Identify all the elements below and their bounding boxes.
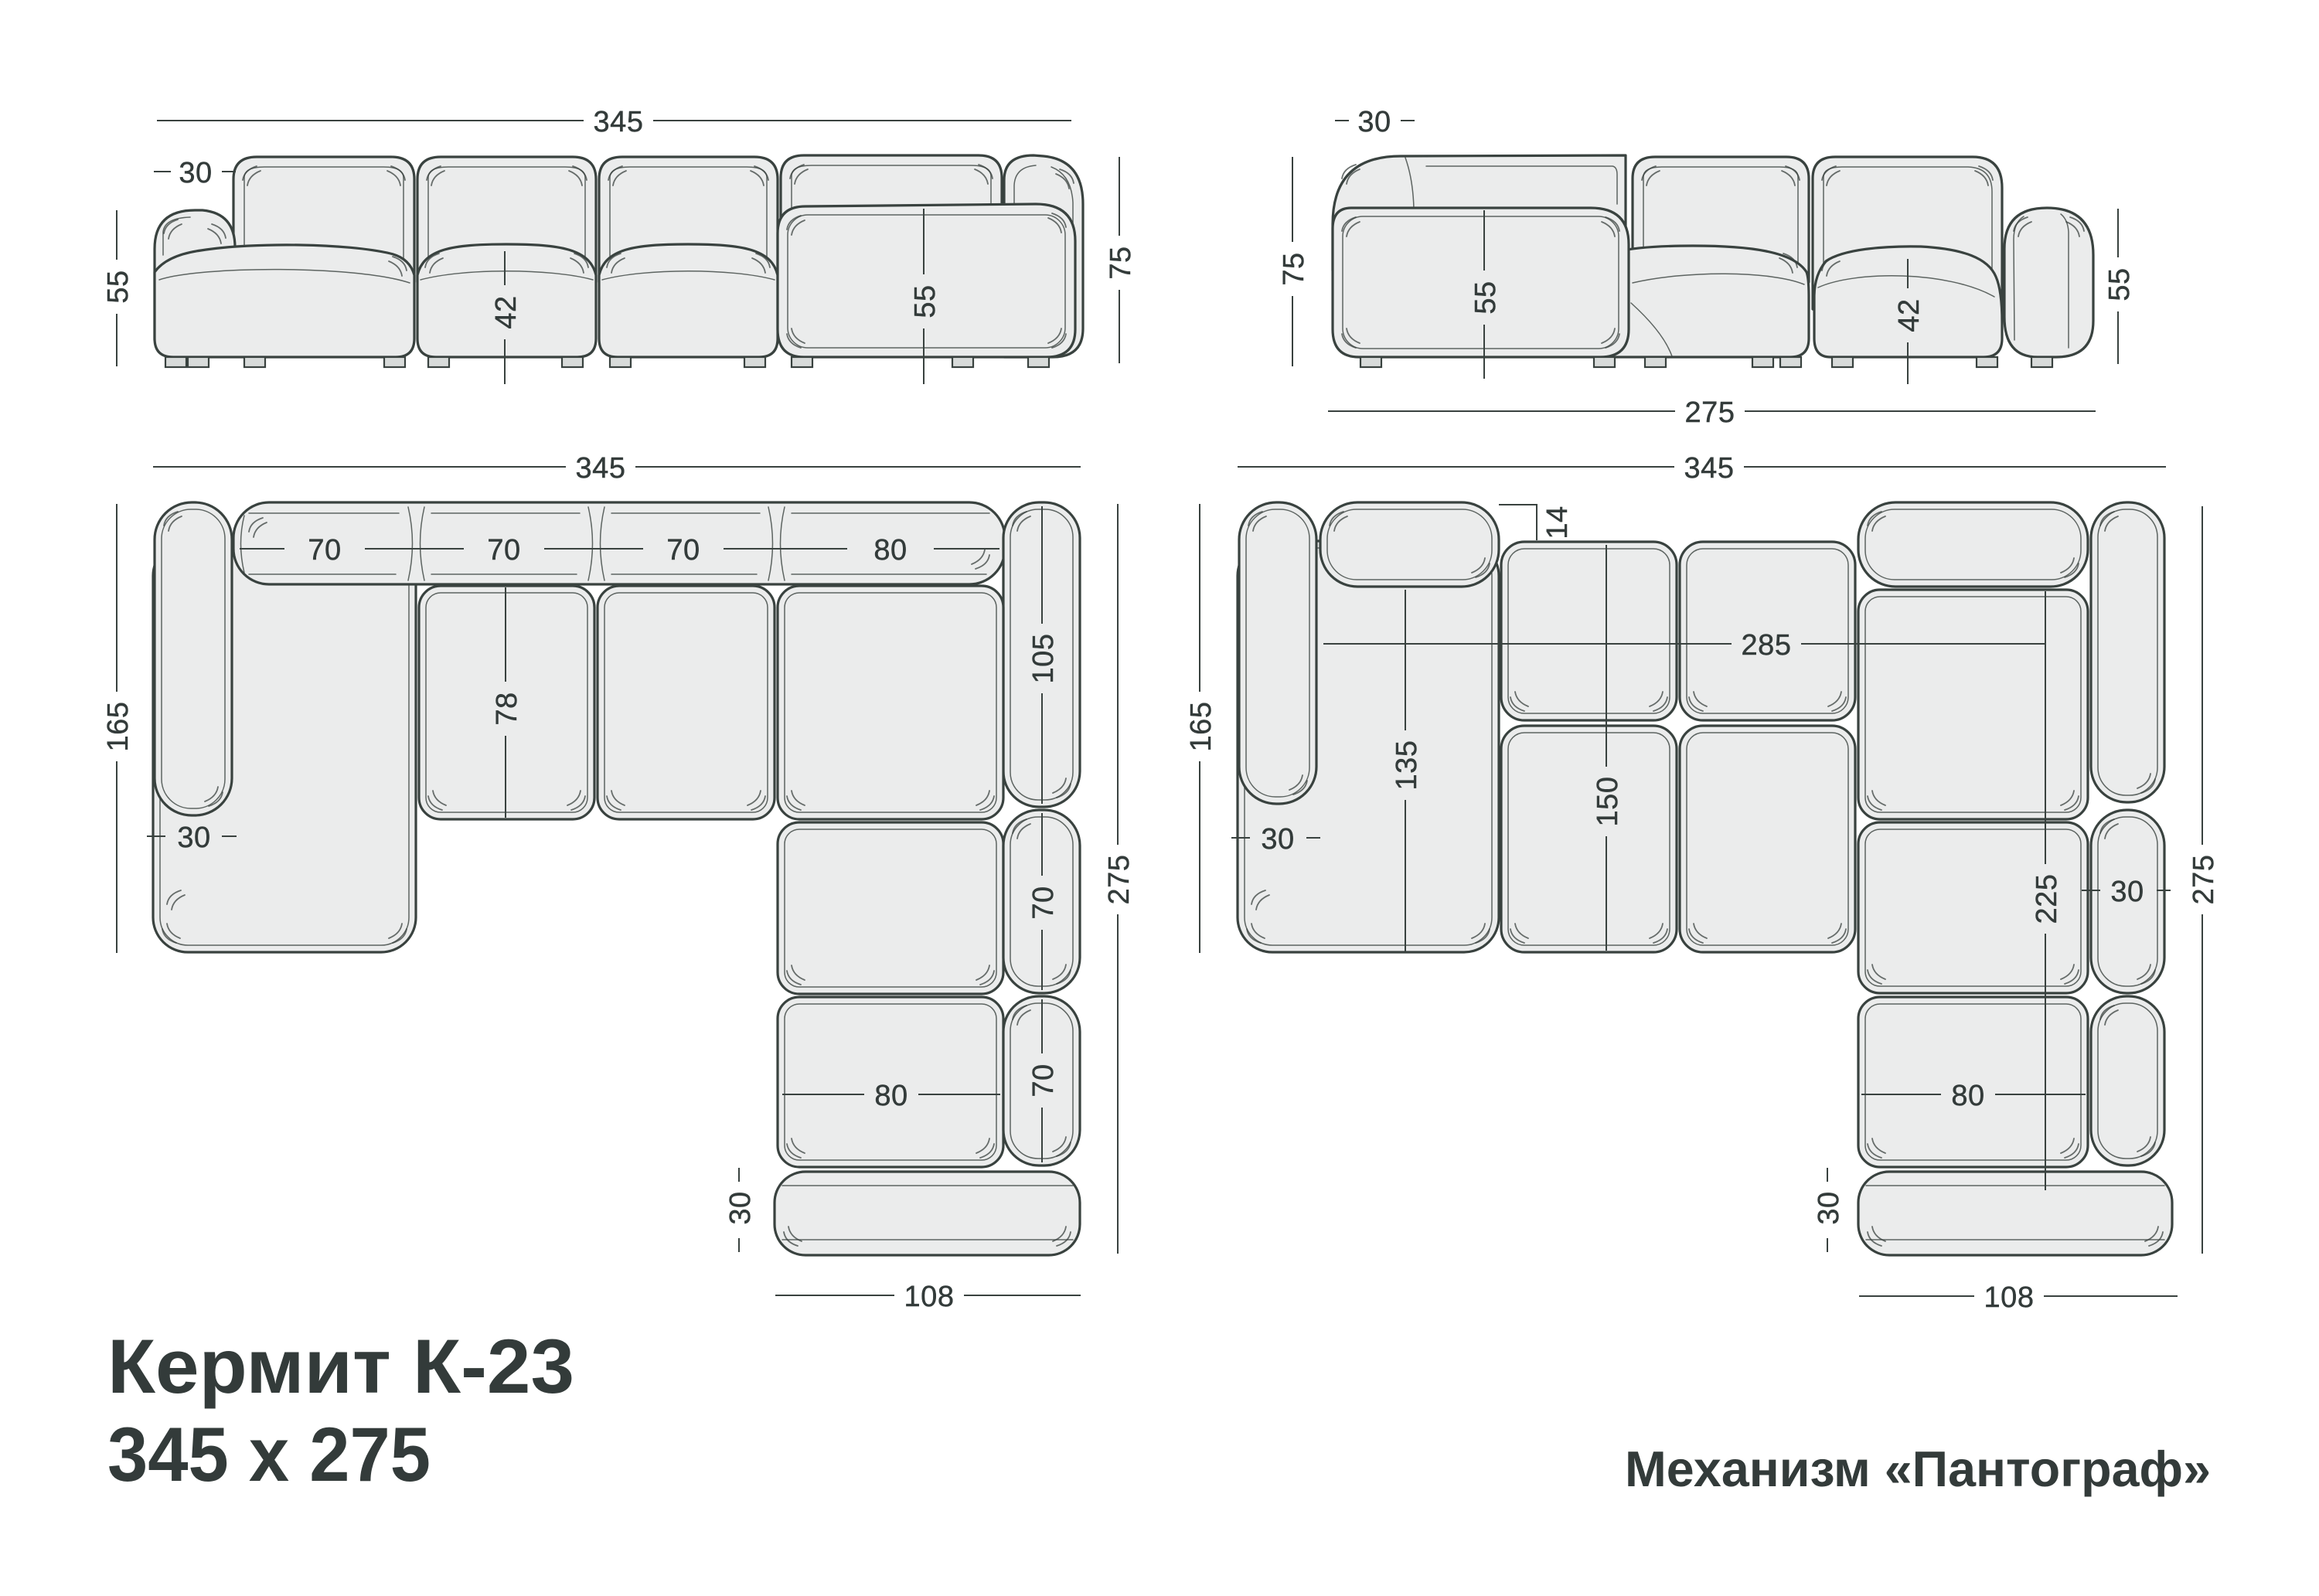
svg-text:30: 30 (179, 157, 212, 189)
svg-text:55: 55 (1469, 281, 1502, 314)
svg-text:345 х 275: 345 х 275 (107, 1411, 431, 1497)
svg-text:Кермит К-23: Кермит К-23 (107, 1323, 574, 1409)
svg-text:75: 75 (1105, 246, 1137, 279)
svg-text:42: 42 (490, 295, 523, 328)
svg-text:225: 225 (2031, 874, 2063, 924)
svg-text:70: 70 (487, 534, 520, 567)
svg-text:105: 105 (1027, 634, 1060, 684)
svg-text:75: 75 (1278, 252, 1310, 285)
svg-text:80: 80 (873, 534, 907, 567)
svg-text:55: 55 (2103, 267, 2136, 301)
svg-text:135: 135 (1391, 740, 1423, 791)
svg-text:Механизм «Пантограф»: Механизм «Пантограф» (1625, 1441, 2211, 1497)
svg-text:70: 70 (1027, 1063, 1060, 1097)
svg-text:165: 165 (1185, 702, 1217, 752)
svg-text:55: 55 (909, 284, 942, 318)
svg-text:275: 275 (1103, 855, 1136, 905)
svg-text:150: 150 (1592, 777, 1624, 827)
svg-text:275: 275 (2188, 855, 2220, 905)
svg-text:345: 345 (594, 106, 644, 138)
svg-text:30: 30 (177, 822, 210, 854)
svg-text:30: 30 (1261, 823, 1294, 856)
svg-text:30: 30 (724, 1191, 757, 1224)
svg-text:345: 345 (576, 452, 626, 485)
svg-text:14: 14 (1541, 505, 1574, 539)
svg-text:70: 70 (308, 534, 341, 567)
svg-text:70: 70 (666, 534, 700, 567)
svg-text:55: 55 (102, 270, 135, 303)
svg-text:108: 108 (904, 1281, 955, 1313)
svg-text:70: 70 (1027, 886, 1060, 919)
svg-text:30: 30 (1813, 1191, 1845, 1224)
svg-text:80: 80 (1951, 1080, 1984, 1112)
svg-text:80: 80 (874, 1080, 908, 1112)
svg-text:30: 30 (2110, 876, 2144, 908)
svg-text:30: 30 (1357, 106, 1391, 138)
svg-text:42: 42 (1893, 298, 1926, 332)
svg-text:285: 285 (1742, 629, 1792, 662)
svg-text:275: 275 (1685, 396, 1735, 429)
svg-text:165: 165 (102, 702, 135, 752)
svg-text:108: 108 (1984, 1281, 2035, 1314)
svg-text:345: 345 (1684, 452, 1735, 485)
svg-text:78: 78 (491, 692, 523, 725)
